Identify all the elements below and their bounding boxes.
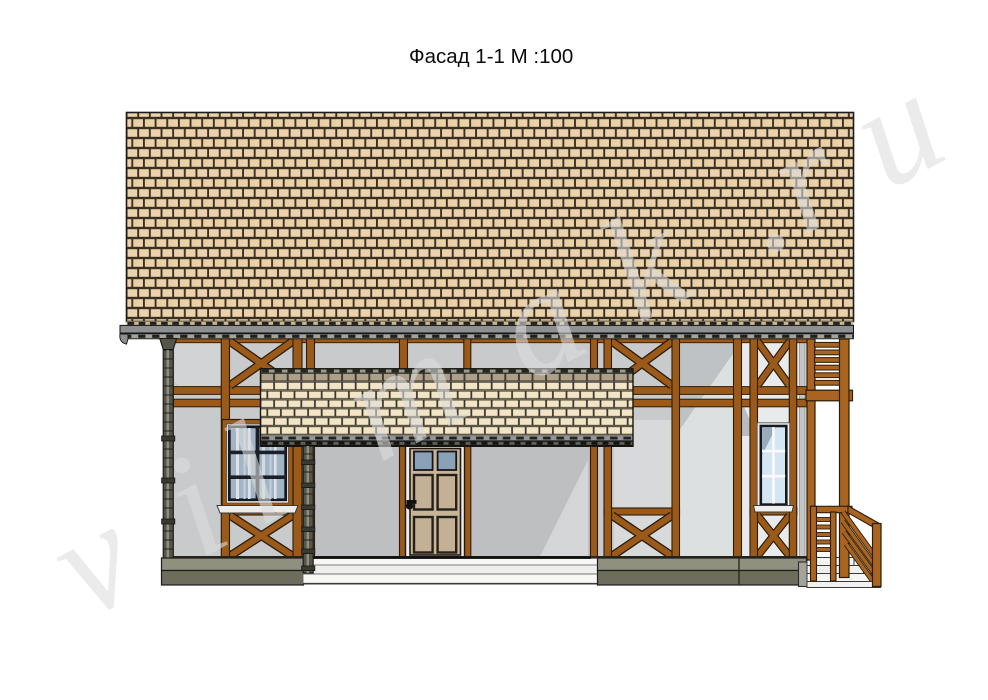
svg-text:Фасад 1-1 М :100: Фасад 1-1 М :100	[409, 45, 573, 68]
